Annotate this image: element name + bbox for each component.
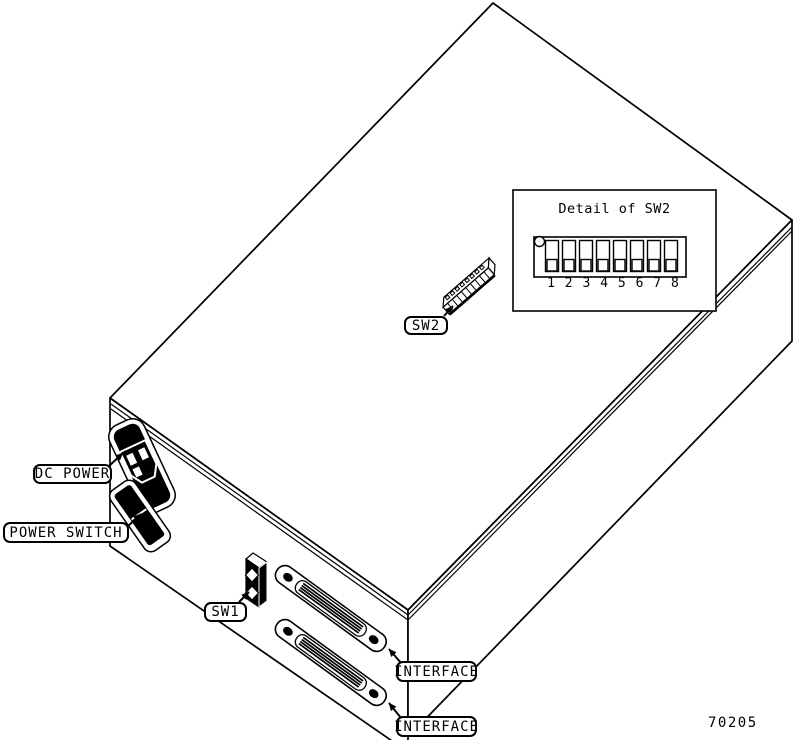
dip-number: 2 [563, 277, 575, 290]
sw1-switch-icon [246, 553, 268, 607]
figure-number: 70205 [708, 715, 758, 731]
rear-view-technical-diagram: DC POWER POWER SWITCH SW1 SW2 INTERFACE … [0, 0, 795, 740]
dip-number: 7 [651, 277, 663, 290]
dip-switch-detail-icon [534, 237, 686, 278]
sw2-label: SW2 [404, 316, 448, 335]
dip-number: 5 [616, 277, 628, 290]
chassis-box [110, 3, 792, 740]
dip-number: 4 [598, 277, 610, 290]
dip-orientation-dot [535, 237, 545, 247]
detail-inset-title: Detail of SW2 [513, 201, 716, 217]
interface-upper-label: INTERFACE [396, 661, 477, 682]
sw1-label: SW1 [204, 602, 247, 622]
dip-number: 8 [669, 277, 681, 290]
chassis-line-art [0, 0, 795, 740]
power-switch-label: POWER SWITCH [3, 522, 129, 543]
interface-lower-label: INTERFACE [396, 716, 477, 737]
dc-power-label: DC POWER [33, 464, 112, 484]
dip-number: 1 [545, 277, 557, 290]
dip-position-numbers: 1 2 3 4 5 6 7 8 [545, 277, 681, 290]
dip-number: 3 [580, 277, 592, 290]
dip-number: 6 [634, 277, 646, 290]
